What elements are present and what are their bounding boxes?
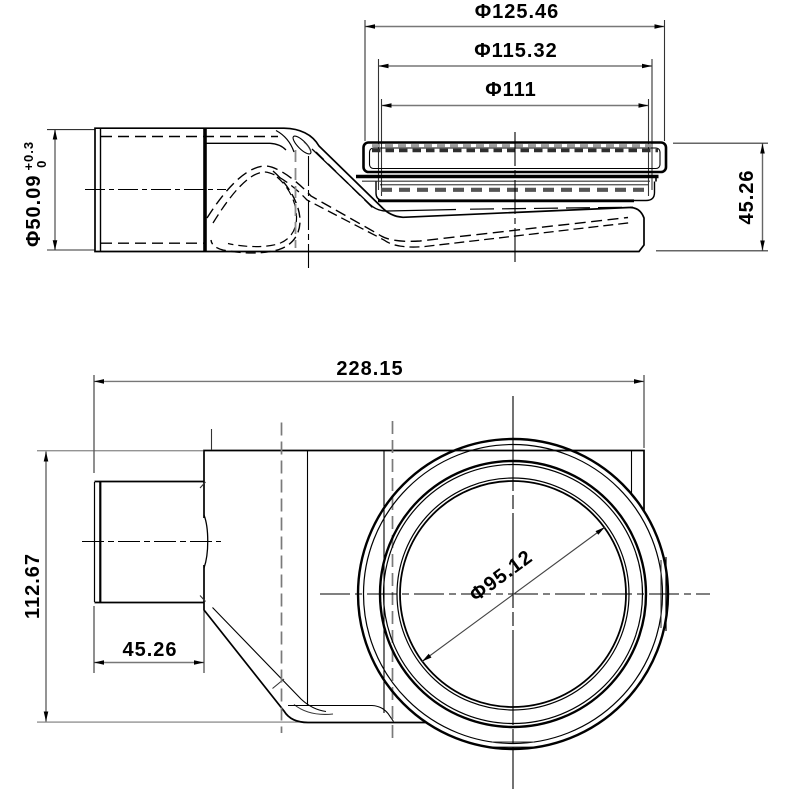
svg-text:112.67: 112.67 (22, 553, 44, 619)
svg-text:45.26: 45.26 (736, 169, 758, 224)
svg-text:Φ125.46: Φ125.46 (475, 1, 560, 23)
svg-text:Φ50.09+0.30: Φ50.09+0.30 (21, 141, 49, 247)
svg-text:Φ95.12: Φ95.12 (466, 546, 537, 607)
svg-text:Φ111: Φ111 (485, 79, 537, 101)
svg-text:228.15: 228.15 (336, 358, 403, 380)
svg-text:45.26: 45.26 (122, 639, 177, 661)
svg-text:Φ115.32: Φ115.32 (474, 40, 557, 62)
